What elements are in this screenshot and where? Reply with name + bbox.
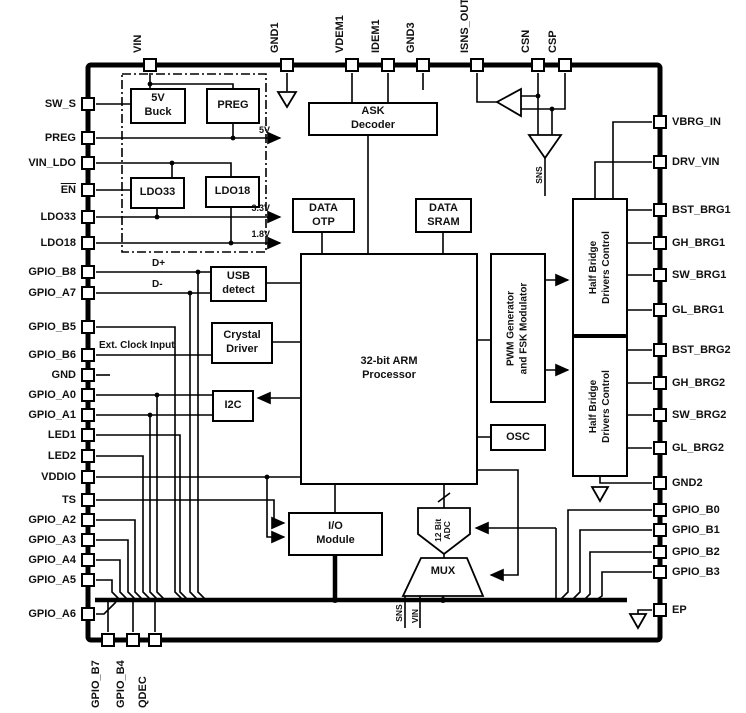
pin-label-gpio-a7: GPIO_A7 (0, 286, 76, 300)
pin-qdec (148, 633, 162, 647)
block-pwm-fsk: PWM Generator and FSK Modulator (490, 253, 546, 403)
pin-csp (558, 58, 572, 72)
pin-gpio-b0 (653, 503, 667, 517)
pin-vin-ldo (81, 156, 95, 170)
usb-dplus-label: D+ (152, 258, 165, 269)
block-arm-processor: 32-bit ARM Processor (300, 253, 478, 485)
mux-sns-label: SNS (394, 598, 404, 628)
pin-gpio-b3 (653, 565, 667, 579)
pin-label-sw-brg1: SW_BRG1 (672, 268, 746, 282)
sns-amp-icon (529, 135, 561, 158)
pin-gpio-a6 (81, 607, 95, 621)
pin-label-vbrg-in: VBRG_IN (672, 115, 746, 129)
pin-label-gpio-a0: GPIO_A0 (0, 388, 76, 402)
block-pwm-fsk-label: PWM Generator and FSK Modulator (506, 282, 531, 374)
pin-bst-brg2 (653, 343, 667, 357)
block-half-bridge-1: Half Bridge Drivers Control (572, 198, 628, 336)
pin-gh-brg1 (653, 236, 667, 250)
pin-isns-out (470, 58, 484, 72)
pin-label-gl-brg2: GL_BRG2 (672, 441, 746, 455)
pin-label-ldo18: LDO18 (0, 236, 76, 250)
pin-label-gh-brg2: GH_BRG2 (672, 376, 746, 390)
rail-1v8-label: 1.8V (220, 229, 270, 240)
pin-drv-vin (653, 155, 667, 169)
block-adc-label: 12 Bit ADC (420, 508, 468, 552)
pin-label-vdem1: VDEM1 (334, 15, 346, 53)
pin-gh-brg2 (653, 376, 667, 390)
block-io-module: I/O Module (288, 512, 383, 556)
pin-label-gl-brg1: GL_BRG1 (672, 303, 746, 317)
pin-label-vddio: VDDIO (0, 470, 76, 484)
pin-label-gnd1: GND1 (269, 22, 281, 53)
pin-en (81, 183, 95, 197)
pin-label-gpio-a4: GPIO_A4 (0, 553, 76, 567)
pin-label-gpio-b3: GPIO_B3 (672, 565, 746, 579)
block-half-bridge-2: Half Bridge Drivers Control (572, 336, 628, 477)
pin-gpio-a1 (81, 408, 95, 422)
pin-gpio-a5 (81, 573, 95, 587)
pin-label-bst-brg1: BST_BRG1 (672, 203, 746, 217)
pin-sw-s (81, 97, 95, 111)
pin-gpio-b5 (81, 320, 95, 334)
pin-label-gpio-b0: GPIO_B0 (672, 503, 746, 517)
pin-label-gpio-b8: GPIO_B8 (0, 265, 76, 279)
pin-label-gnd2: GND2 (672, 476, 746, 490)
pin-gpio-a3 (81, 533, 95, 547)
pin-label-led2: LED2 (0, 449, 76, 463)
pin-label-gpio-b2: GPIO_B2 (672, 545, 746, 559)
pin-vdem1 (345, 58, 359, 72)
mux-trapezoid (403, 558, 483, 596)
pin-csn (531, 58, 545, 72)
block-mux-label: MUX (408, 566, 478, 577)
pin-label-bst-brg2: BST_BRG2 (672, 343, 746, 357)
pin-gpio-b6 (81, 348, 95, 362)
pin-label-gpio-b7: GPIO_B7 (90, 660, 102, 708)
rail-5v-label: 5V (220, 125, 270, 136)
block-data-otp: DATA OTP (292, 198, 355, 233)
pin-label-ep: EP (672, 603, 746, 617)
ext-clock-label: Ext. Clock Input (99, 340, 175, 351)
pin-label-gpio-a6: GPIO_A6 (0, 607, 76, 621)
pin-gnd1 (280, 58, 294, 72)
block-half-bridge-2-label: Half Bridge Drivers Control (588, 370, 613, 443)
pin-gpio-a7 (81, 286, 95, 300)
pin-gnd2 (653, 476, 667, 490)
pin-label-gpio-a1: GPIO_A1 (0, 408, 76, 422)
block-half-bridge-1-label: Half Bridge Drivers Control (588, 231, 613, 304)
block-preg: PREG (206, 88, 260, 124)
block-ask-decoder: ASK Decoder (308, 102, 438, 136)
pin-gpio-b2 (653, 545, 667, 559)
pin-label-gnd: GND (0, 368, 76, 382)
pin-label-gpio-a2: GPIO_A2 (0, 513, 76, 527)
pin-label-csn: CSN (520, 30, 532, 53)
isns-amp-icon (497, 89, 521, 116)
pin-label-gpio-b1: GPIO_B1 (672, 523, 746, 537)
pin-sw-brg2 (653, 408, 667, 422)
adc-text: 12 Bit ADC (435, 518, 454, 541)
pin-gpio-a0 (81, 388, 95, 402)
pin-label-sw-brg2: SW_BRG2 (672, 408, 746, 422)
pin-label-gnd3: GND3 (405, 22, 417, 53)
pin-label-gh-brg1: GH_BRG1 (672, 236, 746, 250)
pin-label-isns-out: ISNS_OUT (459, 0, 471, 53)
sns-amp-label: SNS (534, 160, 544, 190)
pin-sw-brg1 (653, 268, 667, 282)
pin-vbrg-in (653, 115, 667, 129)
pin-led2 (81, 449, 95, 463)
pin-gl-brg1 (653, 303, 667, 317)
pin-label-gpio-a3: GPIO_A3 (0, 533, 76, 547)
pin-led1 (81, 428, 95, 442)
pin-gpio-b7 (101, 633, 115, 647)
pin-preg (81, 131, 95, 145)
pin-label-led1: LED1 (0, 428, 76, 442)
pin-bst-brg1 (653, 203, 667, 217)
pin-label-sw-s: SW_S (0, 97, 76, 111)
pin-label-vin: VIN (132, 35, 144, 53)
pin-gnd (81, 368, 95, 382)
pin-gpio-a2 (81, 513, 95, 527)
usb-dminus-label: D- (152, 279, 163, 290)
pin-label-en: EN (0, 183, 76, 197)
block-usb-detect: USB detect (210, 266, 267, 302)
pin-label-gpio-b6: GPIO_B6 (0, 348, 76, 362)
pin-label-csp: CSP (547, 30, 559, 53)
rail-3v3-label: 3.3V (220, 203, 270, 214)
block-crystal-driver: Crystal Driver (211, 322, 273, 364)
pin-label-preg: PREG (0, 131, 76, 145)
pin-ldo33 (81, 210, 95, 224)
pin-gpio-b1 (653, 523, 667, 537)
pin-label-qdec: QDEC (137, 676, 149, 708)
pin-label-ts: TS (0, 493, 76, 507)
pin-label-drv-vin: DRV_VIN (672, 155, 746, 169)
pin-vin (143, 58, 157, 72)
block-osc: OSC (490, 424, 546, 451)
pin-label-gpio-b4: GPIO_B4 (115, 660, 127, 708)
block-diagram: 5V Buck PREG LDO33 LDO18 ASK Decoder DAT… (0, 0, 746, 713)
pin-label-gpio-b5: GPIO_B5 (0, 320, 76, 334)
block-5v-buck: 5V Buck (130, 88, 186, 124)
pin-gpio-b8 (81, 265, 95, 279)
block-ldo33: LDO33 (130, 177, 185, 209)
pin-gpio-a4 (81, 553, 95, 567)
pin-ts (81, 493, 95, 507)
pin-label-vin-ldo: VIN_LDO (0, 156, 76, 170)
pin-gl-brg2 (653, 441, 667, 455)
pin-label-idem1: IDEM1 (370, 19, 382, 53)
pin-label-gpio-a5: GPIO_A5 (0, 573, 76, 587)
pin-gnd3 (416, 58, 430, 72)
pin-idem1 (381, 58, 395, 72)
block-i2c: I2C (212, 390, 254, 422)
pin-vddio (81, 470, 95, 484)
pin-ldo18 (81, 236, 95, 250)
mux-vin-label: VIN (410, 601, 420, 631)
pin-label-ldo33: LDO33 (0, 210, 76, 224)
pin-ep (653, 603, 667, 617)
pin-gpio-b4 (126, 633, 140, 647)
block-data-sram: DATA SRAM (415, 198, 472, 233)
